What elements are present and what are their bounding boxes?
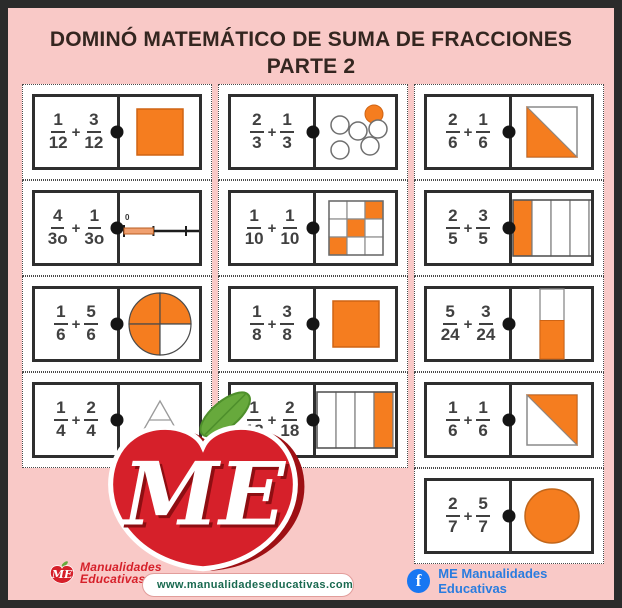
grid-visual [328, 200, 384, 256]
fraction-visual [509, 481, 591, 551]
fraction-2: 1 6 [476, 399, 489, 440]
fraction-2: 1 6 [476, 111, 489, 152]
fraction-1: 2 5 [446, 207, 459, 248]
brand-apple-monogram: ME [51, 568, 73, 581]
fraction-sum: 1 8 + 3 8 [231, 289, 313, 359]
plus-sign: + [72, 316, 81, 333]
bar-visual [512, 199, 591, 257]
numerator: 2 [250, 111, 263, 133]
domino-card: 2 5 + 3 5 [424, 190, 594, 266]
domino-card: 1 10 + 1 10 [228, 190, 398, 266]
fraction-1: 4 3o [48, 207, 68, 248]
domino-card: 2 3 + 1 3 [228, 94, 398, 170]
website-url-bar[interactable]: www.manualidadeseducativas.com [142, 573, 354, 597]
denominator: 6 [56, 325, 65, 345]
apple-icon: ME ME [92, 386, 314, 578]
numerator: 4 [51, 207, 64, 229]
numerator: 5 [84, 303, 97, 325]
plus-sign: + [464, 316, 473, 333]
domino-cell: 1 6 + 5 6 [22, 276, 212, 372]
domino-cell: 1 12 + 3 12 [22, 84, 212, 180]
domino-cell: 1 6 + 1 6 [414, 372, 604, 468]
numerator: 1 [250, 303, 263, 325]
fraction-visual [117, 97, 199, 167]
fraction-visual [313, 385, 395, 455]
divider-dot [307, 126, 320, 139]
filled-circle-visual [523, 487, 581, 545]
divider-dot [503, 510, 516, 523]
numerator: 1 [88, 207, 101, 229]
fraction-1: 1 6 [54, 303, 67, 344]
denominator: 6 [478, 421, 487, 441]
fraction-visual: 0 1 [117, 193, 199, 263]
domino-cell: 1 8 + 3 8 [218, 276, 408, 372]
numerator: 5 [476, 495, 489, 517]
svg-text:0: 0 [125, 213, 130, 222]
domino-card: 1 6 + 5 6 [32, 286, 202, 362]
domino-card: 1 6 + 1 6 [424, 382, 594, 458]
fraction-1: 1 10 [245, 207, 264, 248]
denominator: 3o [48, 229, 68, 249]
fraction-visual [313, 193, 395, 263]
numerator: 3 [280, 303, 293, 325]
denominator: 7 [478, 517, 487, 537]
numerator: 1 [54, 303, 67, 325]
apple-monogram: ME [120, 444, 287, 545]
fraction-sum: 2 3 + 1 3 [231, 97, 313, 167]
fraction-2: 3 5 [476, 207, 489, 248]
domino-cell: 2 5 + 3 5 [414, 180, 604, 276]
fraction-2: 1 10 [280, 207, 299, 248]
domino-card: 4 3o + 1 3o 0 1 [32, 190, 202, 266]
denominator: 6 [448, 421, 457, 441]
denominator: 8 [252, 325, 261, 345]
website-url-text: www.manualidadeseducativas.com [157, 579, 353, 591]
fraction-visual [509, 193, 591, 263]
domino-card: 1 12 + 3 12 [32, 94, 202, 170]
denominator: 6 [86, 325, 95, 345]
half-square-visual [526, 394, 578, 446]
domino-card: 2 6 + 1 6 [424, 94, 594, 170]
denominator: 10 [280, 229, 299, 249]
numerator: 5 [443, 303, 456, 325]
divider-dot [111, 318, 124, 331]
fraction-2: 1 3o [84, 207, 104, 248]
half-square-visual [526, 106, 578, 158]
fraction-sum: 1 6 + 5 6 [35, 289, 117, 359]
number-line-visual: 0 1 [120, 208, 199, 248]
denominator: 10 [245, 229, 264, 249]
numerator: 3 [479, 303, 492, 325]
fraction-1: 1 4 [54, 399, 67, 440]
domino-cell: 2 6 + 1 6 [414, 84, 604, 180]
plus-sign: + [72, 412, 81, 429]
numerator: 1 [476, 111, 489, 133]
fraction-sum: 1 10 + 1 10 [231, 193, 313, 263]
fraction-2: 3 8 [280, 303, 293, 344]
numerator: 2 [446, 495, 459, 517]
fraction-1: 1 12 [49, 111, 68, 152]
title-line-1: DOMINÓ MATEMÁTICO DE SUMA DE FRACCIONES [8, 26, 614, 53]
fraction-2: 3 12 [84, 111, 103, 152]
denominator: 3 [252, 133, 261, 153]
plus-sign: + [268, 220, 277, 237]
fraction-visual [117, 289, 199, 359]
denominator: 6 [478, 133, 487, 153]
plus-sign: + [464, 220, 473, 237]
filled-square-visual [136, 108, 184, 156]
numerator: 1 [280, 111, 293, 133]
plus-sign: + [268, 316, 277, 333]
fraction-2: 3 24 [476, 303, 495, 344]
numerator: 3 [87, 111, 100, 133]
denominator: 3o [84, 229, 104, 249]
domino-cell: 2 3 + 1 3 [218, 84, 408, 180]
fraction-visual [509, 289, 591, 359]
fraction-sum: 1 12 + 3 12 [35, 97, 117, 167]
fraction-visual [509, 385, 591, 455]
denominator: 24 [441, 325, 460, 345]
numerator: 1 [283, 207, 296, 229]
fraction-1: 2 6 [446, 111, 459, 152]
fraction-2: 1 3 [280, 111, 293, 152]
numerator: 1 [446, 399, 459, 421]
divider-dot [503, 414, 516, 427]
plus-sign: + [72, 124, 81, 141]
bar-visual [316, 391, 395, 449]
fraction-1: 2 3 [250, 111, 263, 152]
numerator: 3 [476, 207, 489, 229]
fraction-1: 2 7 [446, 495, 459, 536]
fraction-visual [509, 97, 591, 167]
domino-card: 1 8 + 3 8 [228, 286, 398, 362]
divider-dot [503, 222, 516, 235]
vertical-bar-visual [539, 288, 565, 360]
filled-square-visual [332, 300, 380, 348]
denominator: 5 [478, 229, 487, 249]
brand-name-line-1: Manualidades [80, 561, 162, 573]
domino-cell: 5 24 + 3 24 [414, 276, 604, 372]
numerator: 1 [247, 207, 260, 229]
divider-dot [307, 222, 320, 235]
divider-dot [503, 318, 516, 331]
dots-visual [316, 102, 395, 162]
fraction-sum: 4 3o + 1 3o [35, 193, 117, 263]
domino-card: 5 24 + 3 24 [424, 286, 594, 362]
numerator: 1 [476, 399, 489, 421]
numerator: 1 [54, 399, 67, 421]
numerator: 2 [446, 207, 459, 229]
denominator: 24 [476, 325, 495, 345]
denominator: 8 [282, 325, 291, 345]
title-line-2: PARTE 2 [8, 53, 614, 80]
fraction-sum: 2 6 + 1 6 [427, 97, 509, 167]
fraction-sum: 1 6 + 1 6 [427, 385, 509, 455]
circle-quarters-visual [126, 290, 194, 358]
denominator: 3 [282, 133, 291, 153]
domino-cell: 1 10 + 1 10 [218, 180, 408, 276]
fraction-sum: 5 24 + 3 24 [427, 289, 509, 359]
domino-cell: 2 7 + 5 7 [414, 468, 604, 564]
plus-sign: + [268, 124, 277, 141]
page-title: DOMINÓ MATEMÁTICO DE SUMA DE FRACCIONES … [8, 26, 614, 81]
denominator: 7 [448, 517, 457, 537]
fraction-2: 5 7 [476, 495, 489, 536]
apple-me-logo: ME ME [92, 386, 314, 578]
fraction-visual [313, 97, 395, 167]
divider-dot [111, 126, 124, 139]
fraction-1: 5 24 [441, 303, 460, 344]
fraction-1: 1 6 [446, 399, 459, 440]
plus-sign: + [72, 220, 81, 237]
worksheet-frame: DOMINÓ MATEMÁTICO DE SUMA DE FRACCIONES … [0, 0, 622, 608]
facebook-icon: f [407, 569, 430, 593]
plus-sign: + [464, 124, 473, 141]
plus-sign: + [464, 508, 473, 525]
denominator: 4 [56, 421, 65, 441]
fraction-1: 1 8 [250, 303, 263, 344]
divider-dot [307, 318, 320, 331]
numerator: 2 [446, 111, 459, 133]
divider-dot [111, 222, 124, 235]
facebook-link[interactable]: f ME Manualidades Educativas [407, 566, 614, 596]
fraction-sum: 2 5 + 3 5 [427, 193, 509, 263]
fraction-2: 5 6 [84, 303, 97, 344]
domino-card: 2 7 + 5 7 [424, 478, 594, 554]
divider-dot [503, 126, 516, 139]
domino-cell: 4 3o + 1 3o 0 1 [22, 180, 212, 276]
fraction-sum: 2 7 + 5 7 [427, 481, 509, 551]
denominator: 12 [84, 133, 103, 153]
denominator: 5 [448, 229, 457, 249]
brand-apple-icon: ME [48, 560, 76, 585]
facebook-label: ME Manualidades Educativas [438, 566, 614, 596]
denominator: 12 [49, 133, 68, 153]
denominator: 6 [448, 133, 457, 153]
fraction-visual [313, 289, 395, 359]
numerator: 1 [51, 111, 64, 133]
plus-sign: + [464, 412, 473, 429]
